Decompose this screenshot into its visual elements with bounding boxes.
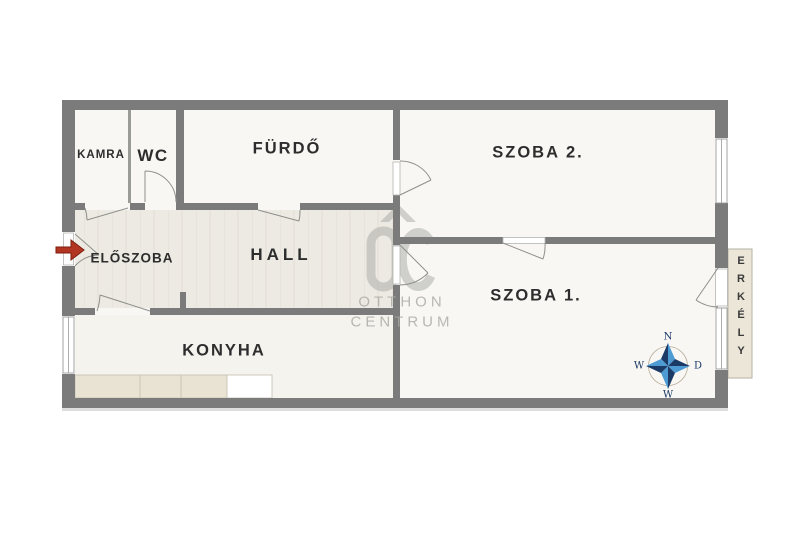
window-konyha (63, 317, 74, 373)
floor-plan-canvas: KAMRA WC FÜRDŐ SZOBA 2. ELŐSZOBA HALL SZ… (0, 0, 800, 533)
room-label-hall: HALL (250, 245, 311, 265)
watermark-text-otthon: OTTHON (358, 294, 445, 311)
window-szoba2 (716, 139, 727, 203)
room-label-eloszoba: ELŐSZOBA (90, 251, 173, 266)
room-label-szoba1: SZOBA 1. (490, 287, 581, 306)
compass-label-south: W (663, 390, 673, 401)
room-label-kamra: KAMRA (77, 149, 125, 161)
room-label-furdo: FÜRDŐ (253, 140, 322, 159)
kitchen-sink (227, 375, 272, 398)
watermark-text-centrum: CENTRUM (351, 314, 454, 331)
kitchen-counter (75, 375, 272, 398)
room-label-szoba2: SZOBA 2. (492, 144, 583, 163)
floor-plan-drawing (0, 0, 800, 533)
room-label-erkely: ERKÉLY (735, 255, 747, 363)
window-szoba1 (716, 308, 727, 369)
compass-label-east: D (694, 361, 702, 372)
compass-label-west: W (634, 361, 644, 372)
room-label-konyha: KONYHA (182, 342, 266, 361)
room-label-wc: WC (137, 146, 168, 166)
compass-label-north: N (664, 332, 673, 343)
